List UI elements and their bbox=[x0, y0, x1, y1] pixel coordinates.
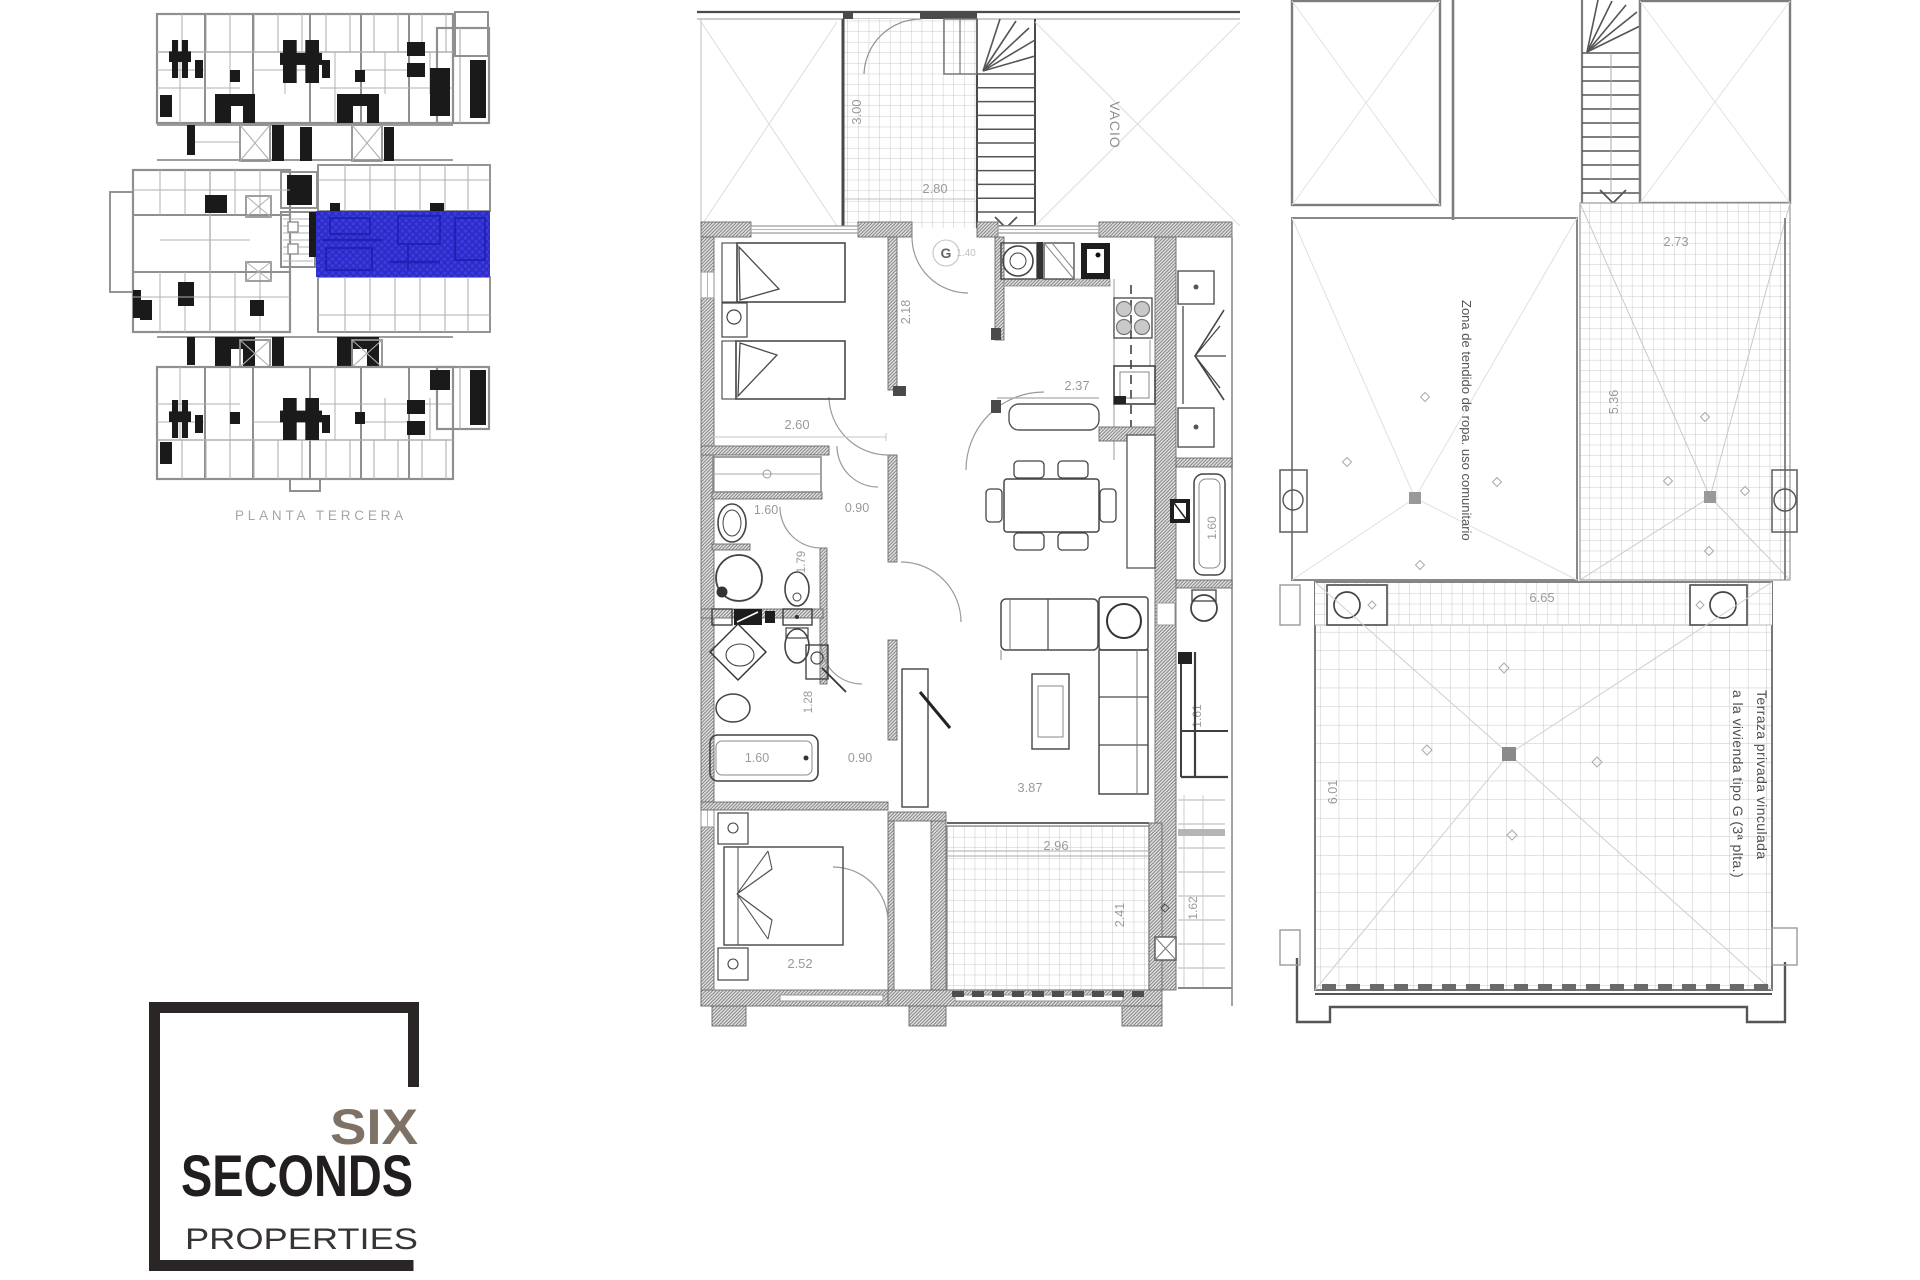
svg-text:2.96: 2.96 bbox=[1043, 838, 1068, 853]
svg-text:6.01: 6.01 bbox=[1326, 780, 1340, 804]
svg-text:2.80: 2.80 bbox=[922, 181, 947, 196]
svg-text:PLANTA TERCERA: PLANTA TERCERA bbox=[235, 508, 407, 523]
svg-text:1.62: 1.62 bbox=[1186, 896, 1200, 920]
svg-text:2.18: 2.18 bbox=[899, 300, 913, 324]
svg-text:0.90: 0.90 bbox=[845, 501, 869, 515]
svg-text:1.60: 1.60 bbox=[1205, 516, 1219, 540]
svg-text:a la vivienda tipo G (3ª plta.: a la vivienda tipo G (3ª plta.) bbox=[1730, 690, 1746, 878]
svg-text:VACIO: VACIO bbox=[1107, 101, 1123, 149]
svg-text:2.52: 2.52 bbox=[787, 956, 812, 971]
svg-text:PROPERTIES: PROPERTIES bbox=[185, 1223, 418, 1256]
svg-text:3.00: 3.00 bbox=[849, 99, 864, 124]
svg-text:SECONDS: SECONDS bbox=[181, 1144, 413, 1209]
svg-text:6.65: 6.65 bbox=[1529, 590, 1554, 605]
svg-text:5.36: 5.36 bbox=[1607, 390, 1621, 414]
svg-text:1.61: 1.61 bbox=[1190, 704, 1204, 728]
svg-text:0.90: 0.90 bbox=[848, 751, 872, 765]
svg-text:Zona de tendido de ropa. uso c: Zona de tendido de ropa. uso comunitario bbox=[1459, 300, 1474, 541]
svg-text:1.79: 1.79 bbox=[796, 551, 808, 573]
svg-text:2.73: 2.73 bbox=[1663, 234, 1688, 249]
svg-text:1.28: 1.28 bbox=[803, 691, 815, 713]
svg-text:G: G bbox=[941, 245, 952, 261]
svg-text:2.60: 2.60 bbox=[784, 417, 809, 432]
svg-text:1.40: 1.40 bbox=[956, 248, 976, 259]
svg-text:Terraza privada vinculada: Terraza privada vinculada bbox=[1754, 690, 1770, 860]
svg-text:2.37: 2.37 bbox=[1064, 378, 1089, 393]
svg-text:3.87: 3.87 bbox=[1017, 780, 1042, 795]
svg-text:1.60: 1.60 bbox=[745, 751, 769, 765]
svg-text:2.41: 2.41 bbox=[1113, 903, 1127, 927]
svg-text:1.60: 1.60 bbox=[754, 503, 778, 517]
